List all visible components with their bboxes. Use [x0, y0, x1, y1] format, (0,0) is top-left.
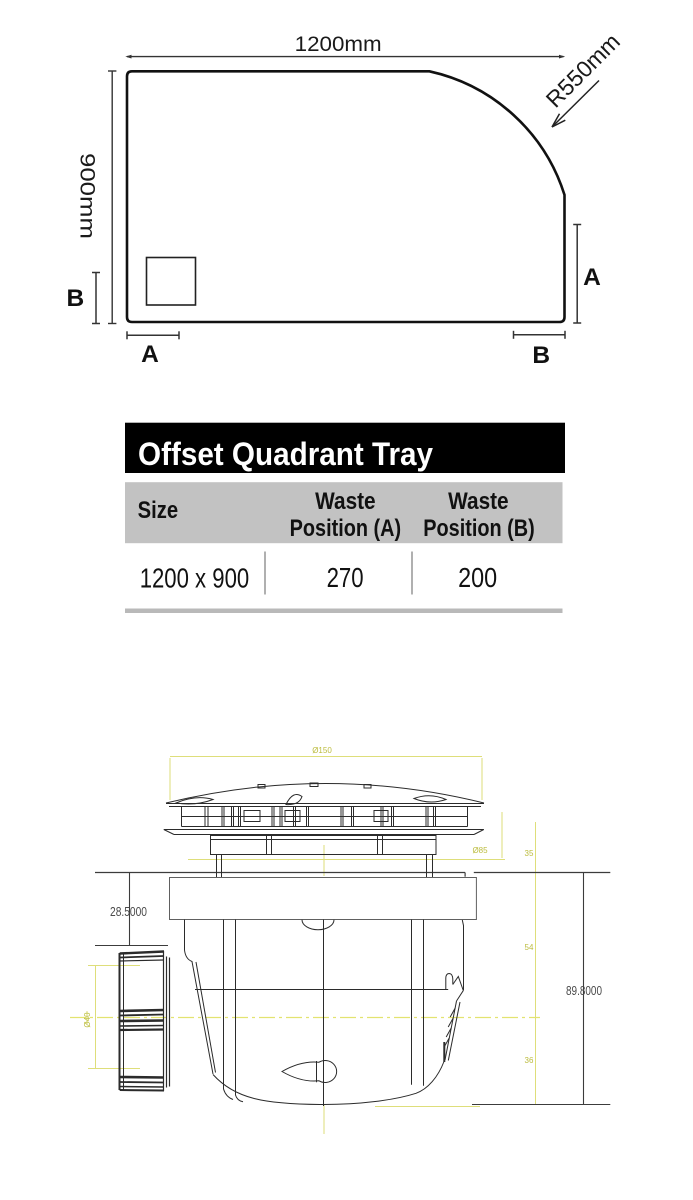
svg-text:1200mm: 1200mm — [295, 32, 382, 56]
svg-text:28.5000: 28.5000 — [110, 904, 147, 919]
svg-text:Offset Quadrant Tray: Offset Quadrant Tray — [138, 436, 433, 472]
svg-text:Waste: Waste — [315, 488, 376, 515]
svg-text:36: 36 — [525, 1056, 534, 1065]
svg-text:54: 54 — [525, 943, 534, 952]
svg-text:B: B — [67, 285, 85, 312]
svg-text:270: 270 — [327, 562, 364, 593]
svg-text:35: 35 — [525, 849, 534, 858]
svg-text:Position (B): Position (B) — [423, 515, 535, 542]
svg-text:900mm: 900mm — [76, 153, 100, 239]
svg-text:Ø85: Ø85 — [472, 846, 488, 855]
svg-text:Waste: Waste — [448, 488, 509, 515]
svg-text:Ø40: Ø40 — [83, 1012, 92, 1028]
svg-text:A: A — [583, 264, 601, 291]
svg-text:A: A — [141, 341, 159, 368]
svg-text:200: 200 — [458, 562, 497, 593]
svg-text:Position (A): Position (A) — [290, 515, 402, 542]
svg-text:Ø150: Ø150 — [312, 746, 332, 755]
svg-text:Size: Size — [138, 497, 179, 524]
svg-text:B: B — [532, 342, 550, 369]
svg-text:89.8000: 89.8000 — [566, 983, 602, 998]
svg-text:1200 x 900: 1200 x 900 — [140, 562, 250, 593]
svg-text:R550mm: R550mm — [541, 28, 625, 112]
